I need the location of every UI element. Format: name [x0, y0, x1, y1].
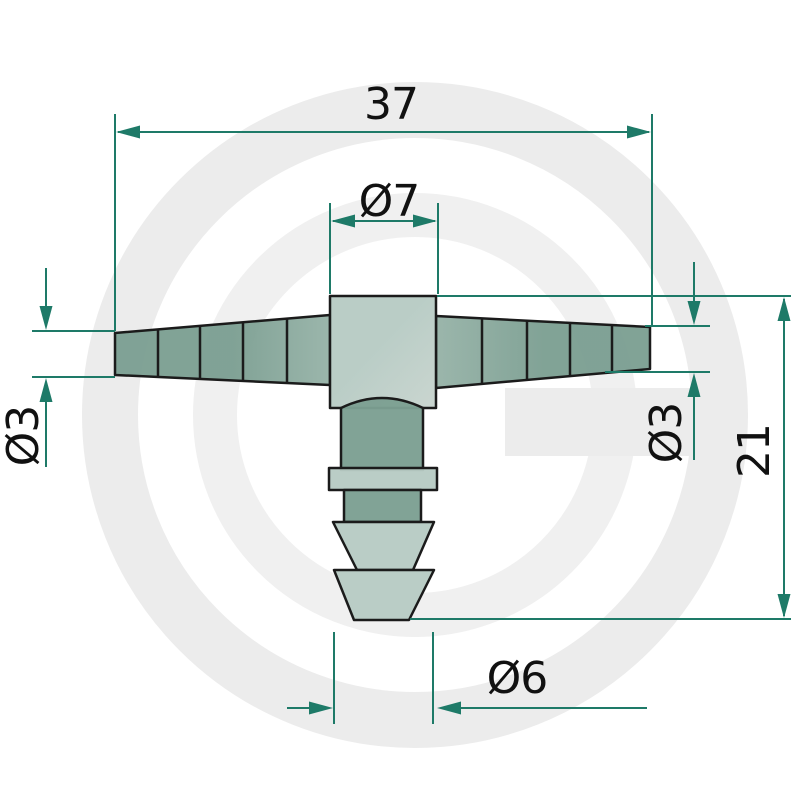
collar-ring [329, 468, 437, 490]
barb-cone-upper [333, 522, 434, 570]
dim-arrow [778, 594, 791, 618]
dim-label-overall-width: 37 [364, 79, 418, 130]
technical-drawing-canvas: 37 Ø7 Ø3 Ø3 21 Ø6 [0, 0, 800, 800]
dim-arrow [778, 297, 791, 321]
second-neck [344, 490, 421, 522]
dim-arrow [116, 126, 140, 139]
dim-label-right-diameter: Ø3 [641, 403, 692, 464]
center-block [330, 296, 436, 408]
dim-label-left-diameter: Ø3 [0, 406, 49, 467]
t-connector-diagram: 37 Ø7 Ø3 Ø3 21 Ø6 [0, 0, 800, 800]
dim-arrow [627, 126, 651, 139]
lower-neck [341, 398, 423, 470]
dim-label-side-height: 21 [729, 424, 780, 478]
dim-label-top-diameter: Ø7 [359, 176, 420, 227]
dim-arrow [40, 378, 53, 402]
dim-label-bottom-diameter: Ø6 [487, 653, 548, 704]
dim-arrow [40, 306, 53, 330]
watermark-g-bar [505, 388, 745, 456]
